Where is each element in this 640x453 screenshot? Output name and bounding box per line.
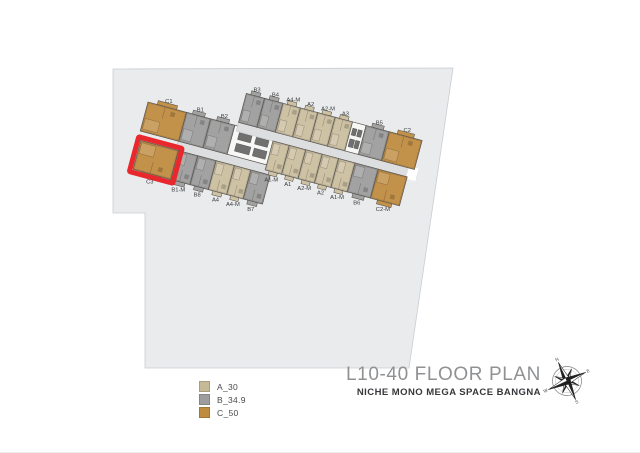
unit-label-b2: B2	[221, 114, 228, 120]
project-name: NICHE MONO MEGA SPACE BANGNA	[346, 388, 541, 398]
floor-plan-page: C1B1B2C3B1-MB8A4A4-MB7B3B4A4-MA2A2-MA3B5…	[0, 0, 640, 453]
unit-label-b4: B4	[272, 93, 280, 99]
legend-item-b: B_34.9	[199, 393, 246, 406]
compass-icon: NESW	[541, 355, 593, 407]
unit-label-a1: A1	[284, 182, 291, 188]
unit-label-b3: B3	[254, 88, 261, 94]
unit-label-c3: C3	[146, 180, 153, 186]
unit-label-c2-m: C2-M	[376, 207, 390, 213]
legend-swatch-b	[199, 394, 210, 405]
unit-label-a4-m: A4-M	[226, 202, 240, 208]
unit-label-c2: C2	[404, 128, 411, 134]
unit-label-b5: B5	[376, 120, 383, 126]
unit-label-b7: B7	[247, 207, 254, 213]
floor-plan-title: L10-40 FLOOR PLAN	[346, 365, 541, 385]
unit-label-a3: A3	[342, 111, 349, 117]
legend-swatch-c	[199, 407, 210, 418]
compass-rose: NESW	[541, 355, 593, 407]
compass-letter-n: N	[554, 356, 559, 362]
unit-label-a1-m: A1-M	[264, 177, 278, 183]
unit-label-a4: A4	[212, 197, 220, 203]
unit-label-c1: C1	[165, 99, 172, 105]
unit-label-a2-m: A2-M	[297, 186, 311, 192]
legend-swatch-a	[199, 381, 210, 392]
legend-item-a: A_30	[199, 380, 246, 393]
compass-letter-e: E	[586, 368, 591, 374]
unit-label-b8: B8	[194, 192, 201, 198]
unit-label-b6: B6	[353, 200, 360, 206]
unit-label-a2: A2	[317, 191, 324, 197]
compass-letter-w: W	[543, 387, 550, 394]
legend: A_30 B_34.9 C_50	[199, 380, 246, 419]
title-block: L10-40 FLOOR PLAN NICHE MONO MEGA SPACE …	[346, 365, 541, 398]
unit-label-b1: B1	[197, 107, 204, 113]
unit-label-a1-m: A1-M	[330, 195, 344, 201]
legend-label-b: B_34.9	[217, 395, 246, 405]
unit-label-b1-m: B1-M	[171, 187, 185, 193]
legend-item-c: C_50	[199, 406, 246, 419]
compass-letter-s: S	[574, 399, 579, 405]
legend-label-a: A_30	[217, 382, 238, 392]
unit-label-a4-m: A4-M	[286, 97, 300, 103]
legend-label-c: C_50	[217, 408, 239, 418]
unit-label-a2: A2	[307, 102, 314, 108]
unit-label-a2-m: A2-M	[321, 107, 335, 113]
